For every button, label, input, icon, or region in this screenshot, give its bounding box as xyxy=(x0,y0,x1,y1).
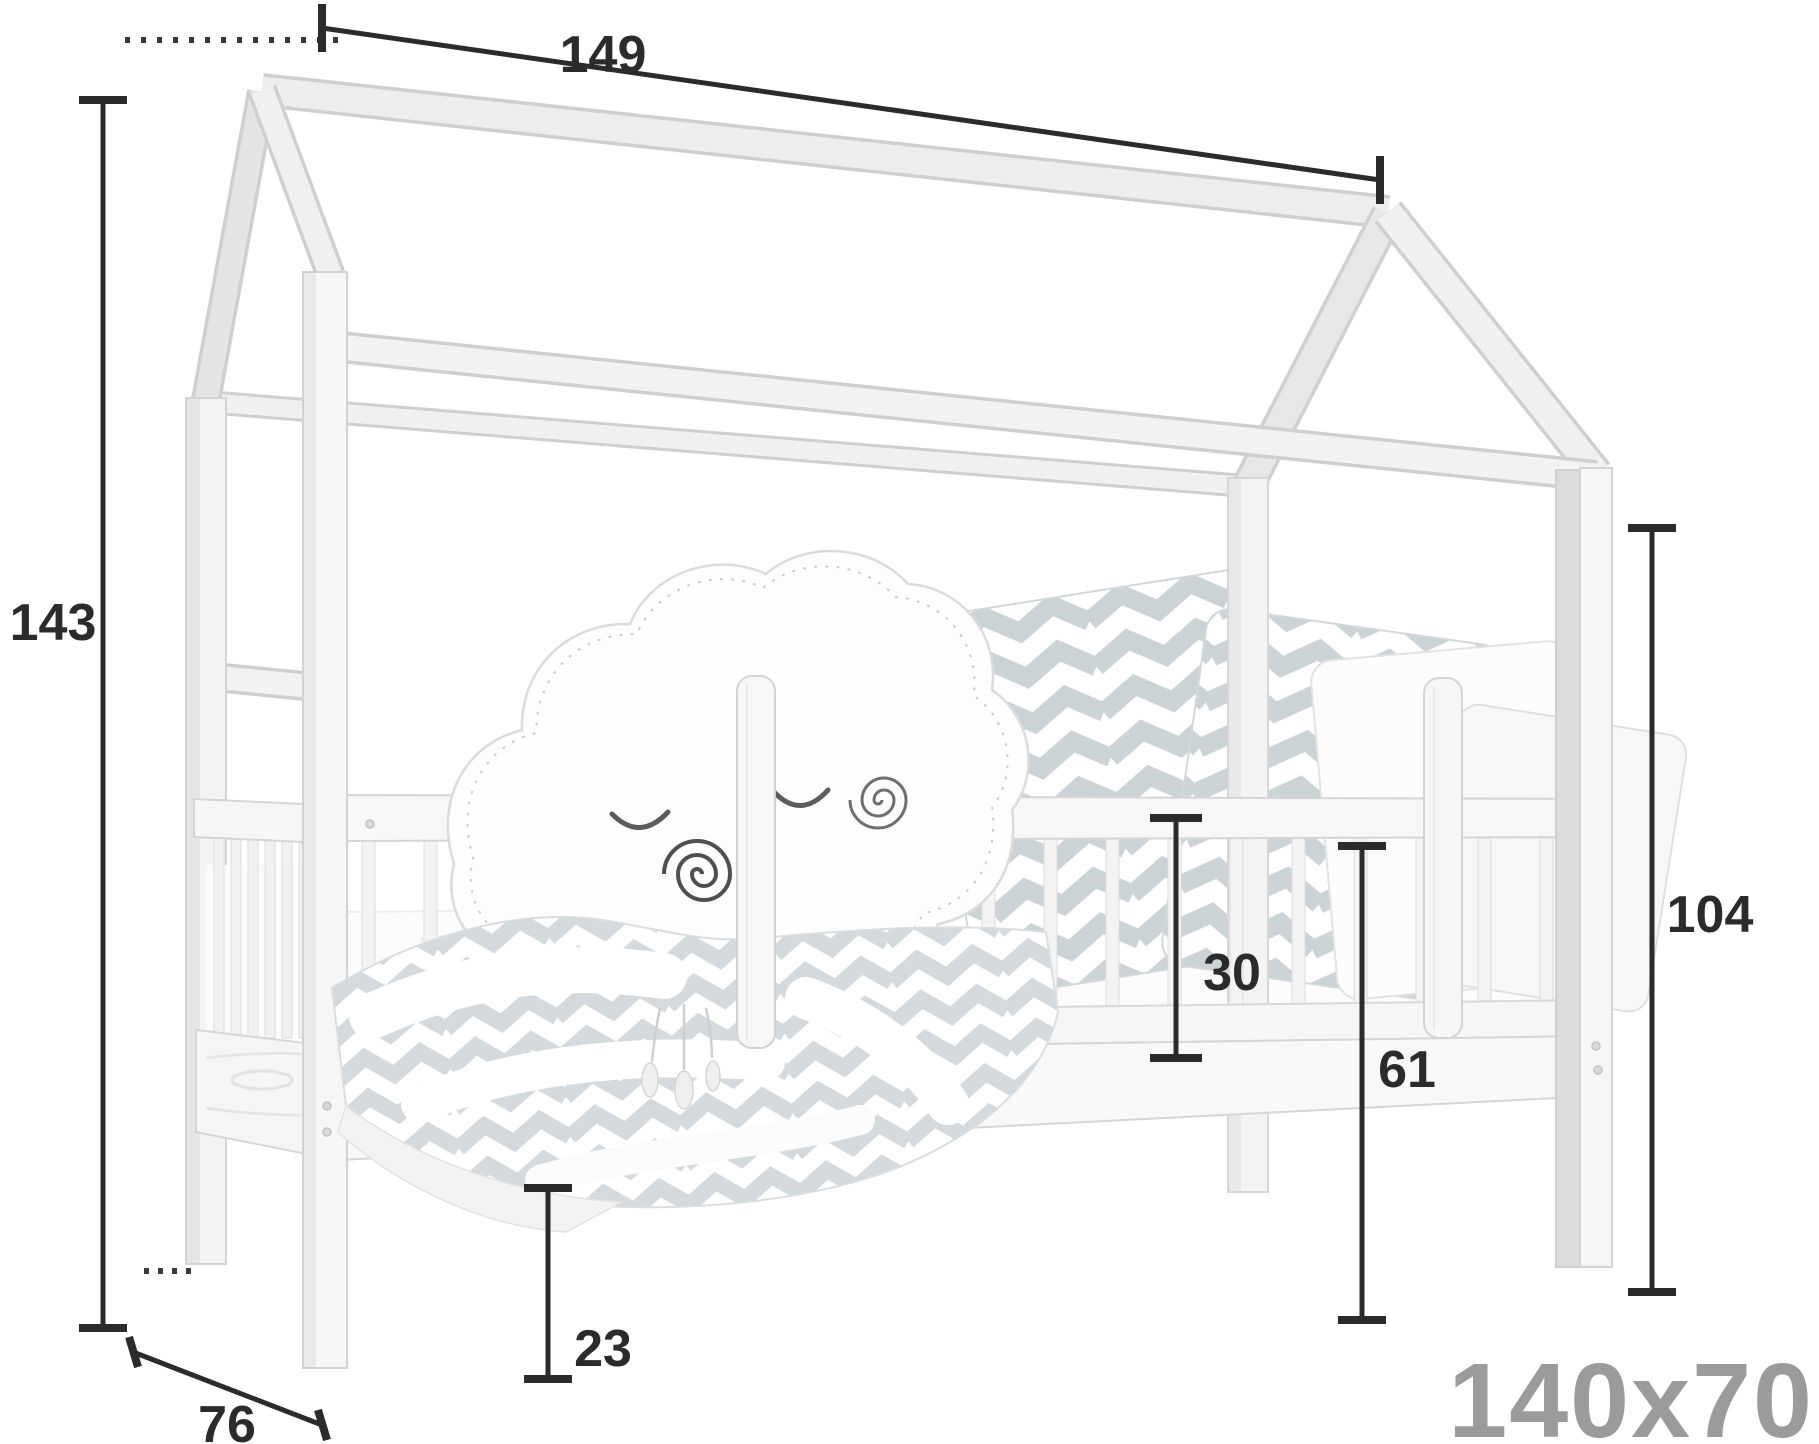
product-dimension-diagram: 149 143 104 30 61 23 76 140x70 xyxy=(0,0,1819,1444)
guard-plank-left xyxy=(737,676,775,1048)
dim-104-label: 104 xyxy=(1667,886,1754,944)
dim-143-label: 143 xyxy=(10,594,97,652)
diagram-canvas: 149 143 104 30 61 23 76 140x70 xyxy=(0,0,1819,1444)
dim-149-label: 149 xyxy=(560,26,647,84)
dim-76-label: 76 xyxy=(198,1396,256,1444)
dim-23-label: 23 xyxy=(574,1320,632,1378)
dim-61-label: 61 xyxy=(1378,1041,1436,1099)
post-front-right xyxy=(1556,468,1612,1267)
guard-plank-right xyxy=(1424,678,1462,1038)
dim-30-label: 30 xyxy=(1203,944,1261,1002)
size-label: 140x70 xyxy=(1448,1342,1814,1444)
post-front-left xyxy=(303,272,347,1368)
